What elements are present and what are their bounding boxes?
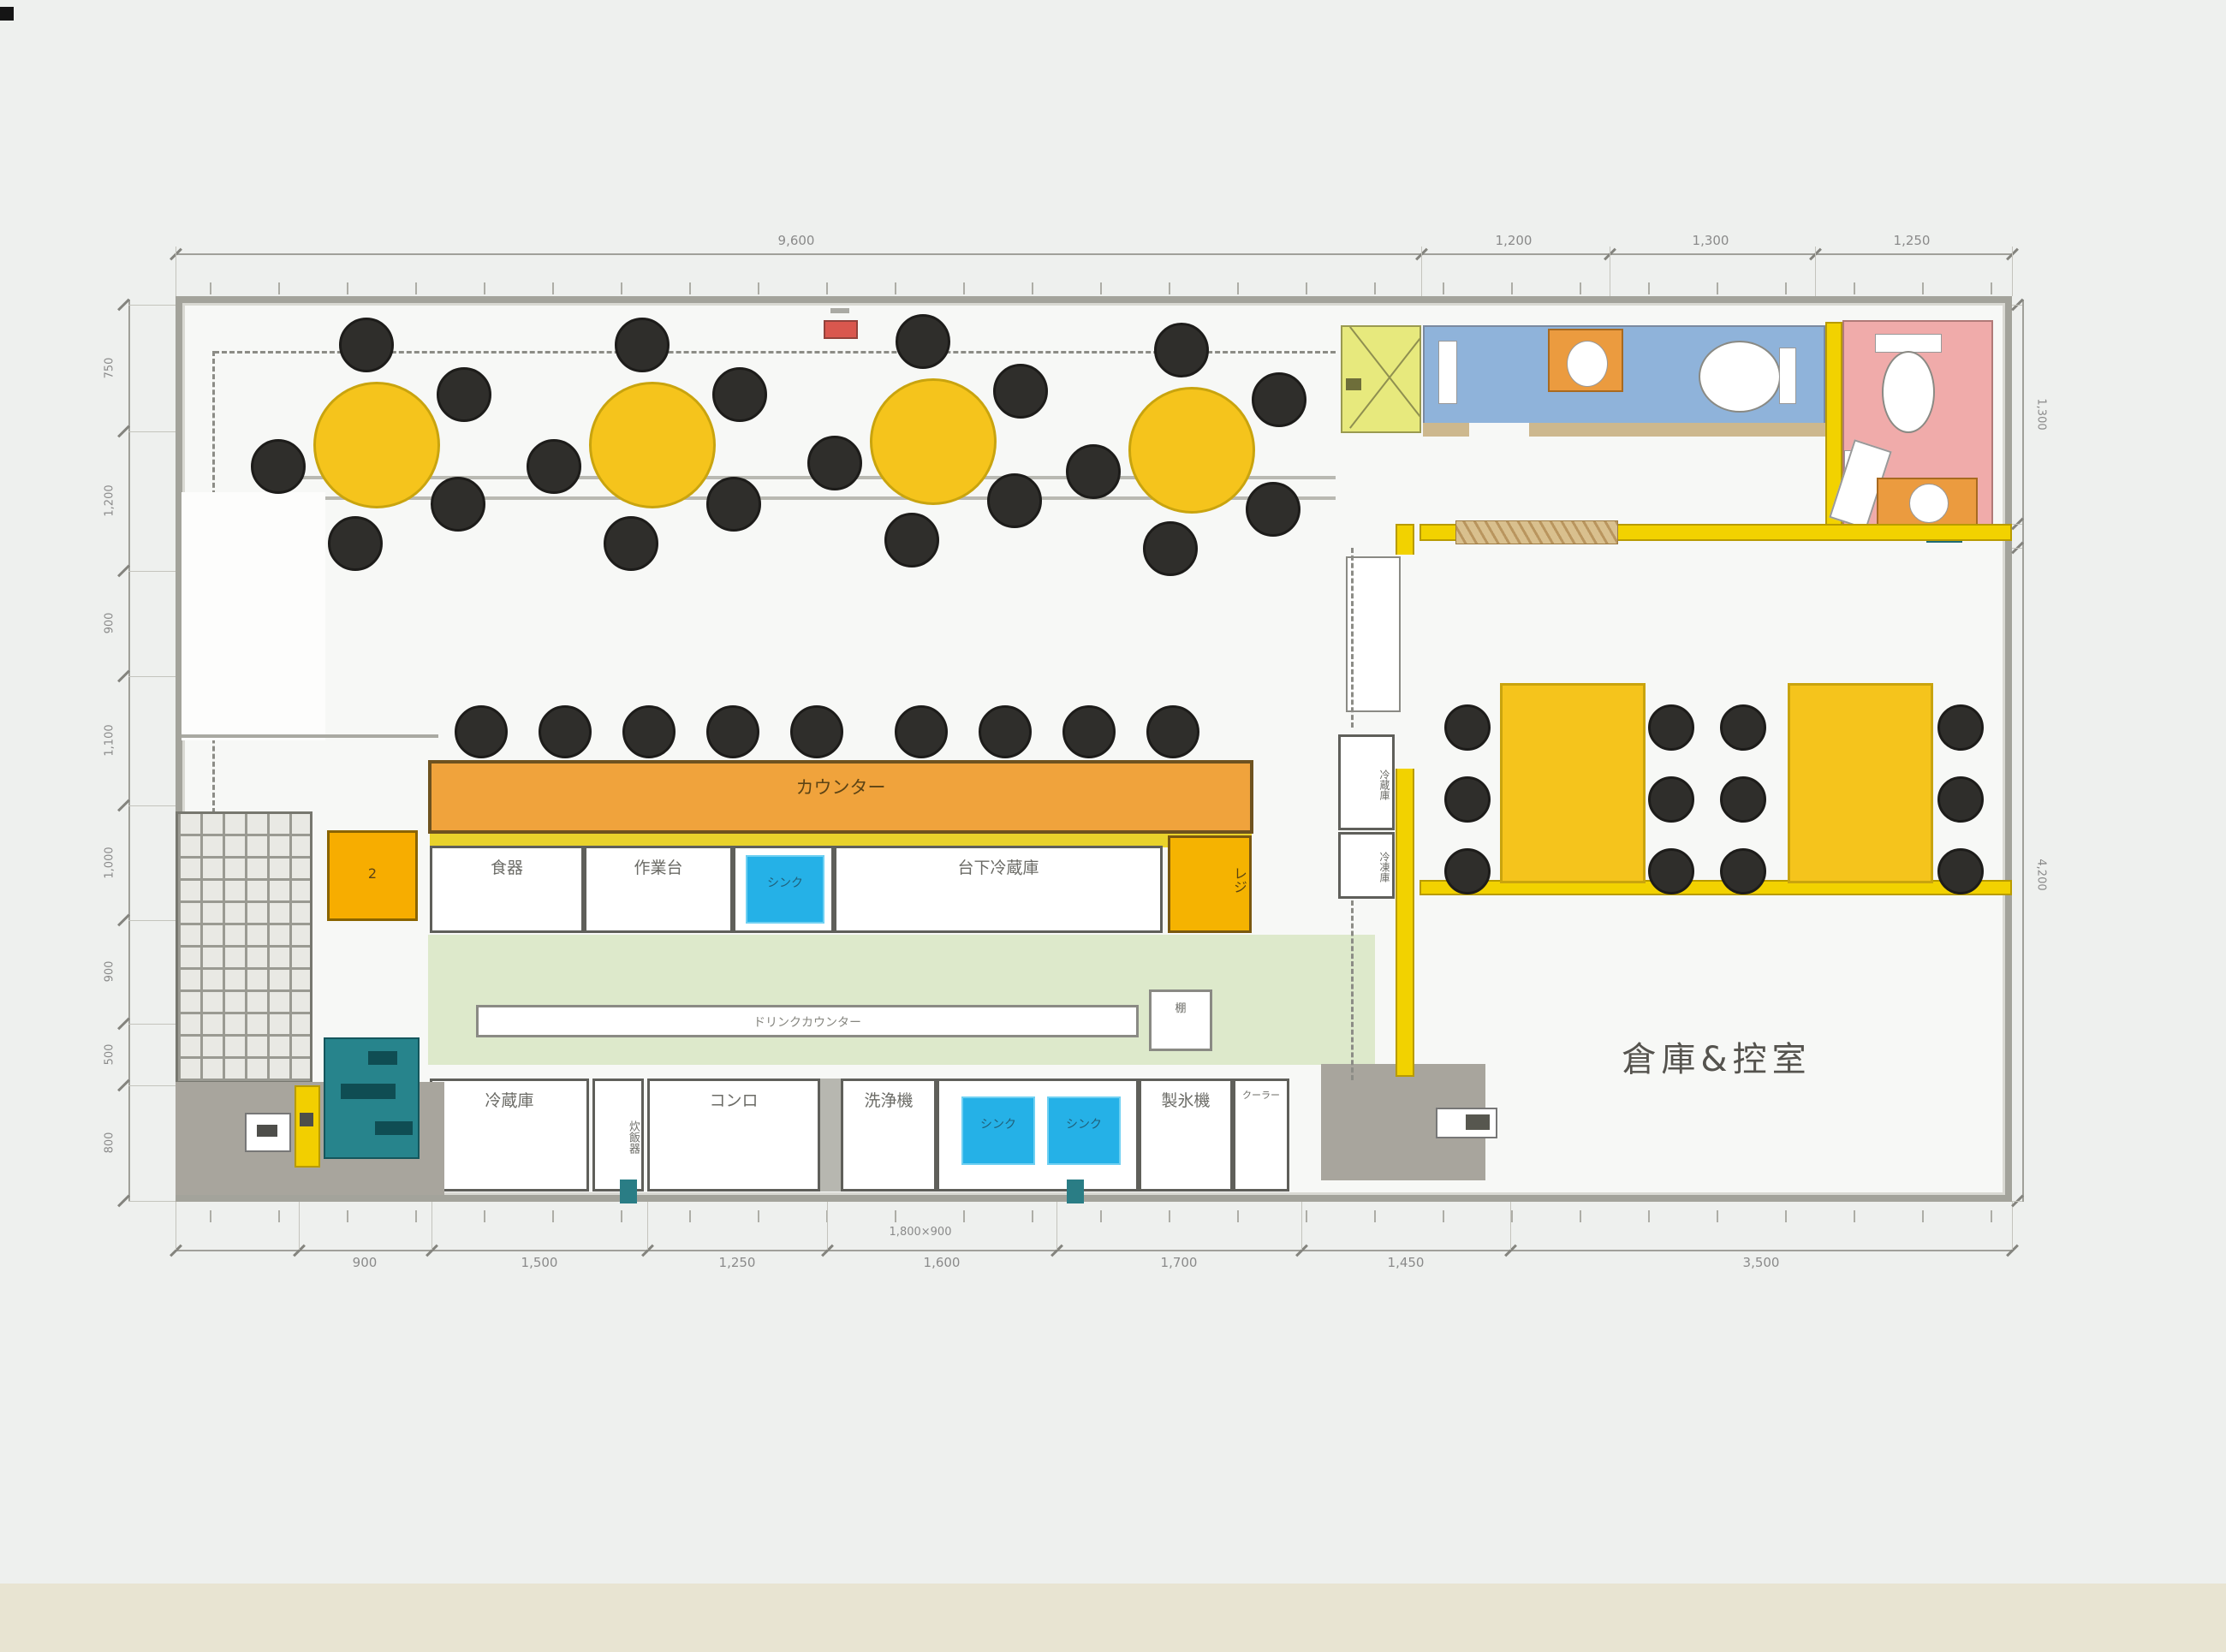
floor-drain-left: [620, 1180, 637, 1203]
mens-toilet: [1423, 325, 1825, 433]
minor-tick: [347, 1210, 348, 1222]
scanned-floor-plan: カウンター 2 食器 作業台 シンク 台下冷蔵庫 レジ ドリンクカウンター 棚 …: [0, 0, 2226, 1652]
equip-fridge-label: 冷蔵庫: [432, 1088, 586, 1111]
extension-line: [128, 431, 176, 432]
minor-tick: [552, 282, 554, 294]
dashed-service-line-lower: [1351, 900, 1354, 1080]
closet-mark: [1346, 378, 1361, 390]
minor-tick: [1100, 282, 1102, 294]
teal-cabinet-text-blob-1: [368, 1051, 397, 1065]
equip-double-sink: シンク シンク: [937, 1079, 1139, 1191]
extension-line: [432, 1202, 432, 1250]
chair: [1648, 704, 1694, 751]
mens-toilet-tank: [1779, 348, 1796, 404]
storage-north-sliding-door: [1455, 520, 1618, 544]
minor-tick: [1100, 1210, 1102, 1222]
minor-tick: [758, 1210, 759, 1222]
extension-line: [1610, 247, 1610, 296]
extension-line: [1301, 1202, 1302, 1250]
mens-sink-basin: [1567, 341, 1608, 387]
entrance-left-door-knob: [300, 1113, 313, 1126]
chair: [251, 439, 306, 494]
teal-cabinet: [324, 1037, 420, 1159]
chair: [1937, 848, 1984, 894]
dim-label: 1,700: [1161, 1255, 1198, 1270]
extension-line: [2012, 548, 2022, 549]
storage-west-door-leaf: [1346, 556, 1401, 712]
minor-tick: [552, 1210, 554, 1222]
stool: [1062, 705, 1116, 758]
dim-label: 1,450: [1388, 1255, 1425, 1270]
round-table: [589, 382, 716, 508]
chair: [1937, 704, 1984, 751]
stool: [706, 705, 759, 758]
equip-stove-label: コンロ: [650, 1088, 818, 1111]
extension-line: [2012, 247, 2013, 296]
wall-box-freezer-label: 冷凍庫: [1341, 840, 1392, 894]
chair: [527, 439, 581, 494]
dim-label: 9,600: [778, 233, 815, 248]
dim-chain-top: [176, 253, 2012, 255]
extension-line: [1056, 1202, 1057, 1250]
sink-basin-label: シンク: [747, 874, 823, 891]
vestibule-signbox-mark: [1466, 1114, 1490, 1130]
dim-label: 1,300: [2035, 398, 2048, 430]
minor-tick: [210, 1210, 211, 1222]
service-zone: [428, 935, 1375, 1065]
round-table: [1128, 387, 1255, 514]
wall-box-freezer: 冷凍庫: [1338, 832, 1395, 899]
dim-label: 1,200: [104, 484, 116, 516]
small-shelf-label: 棚: [1152, 999, 1210, 1015]
equip-tableware-label: 食器: [432, 855, 581, 878]
stool: [455, 705, 508, 758]
minor-tick: [1169, 282, 1170, 294]
chair: [615, 318, 670, 372]
drink-bar: ドリンクカウンター: [476, 1005, 1139, 1037]
dim-note: 1,800×900: [890, 1226, 952, 1239]
minor-tick: [1717, 1210, 1718, 1222]
extension-line: [128, 920, 176, 921]
equip-worktable: 作業台: [584, 846, 733, 933]
womens-toilet-tank: [1875, 334, 1942, 353]
minor-tick: [1785, 1210, 1787, 1222]
minor-tick: [895, 1210, 896, 1222]
equip-rice-cooker: 炊飯器: [592, 1079, 644, 1191]
entrance-left-signbox-mark: [257, 1125, 277, 1137]
equip-dishwasher: 洗浄機: [841, 1079, 937, 1191]
stool: [539, 705, 592, 758]
womens-sink: [1877, 478, 1978, 526]
extension-line: [2012, 305, 2022, 306]
minor-tick: [1991, 1210, 1992, 1222]
minor-tick: [484, 282, 485, 294]
extension-line: [128, 305, 176, 306]
extension-line: [1421, 247, 1422, 296]
wall-box-fridge-label: 冷蔵庫: [1341, 744, 1392, 826]
minor-tick: [689, 282, 691, 294]
hall-table: [1500, 683, 1646, 883]
dashed-service-line-upper: [1351, 548, 1354, 728]
utility-closet: [1341, 325, 1421, 433]
equip-undercounter-fridge: 台下冷蔵庫: [834, 846, 1163, 933]
equip-ice-maker: 製氷機: [1139, 1079, 1233, 1191]
minor-tick: [1306, 1210, 1307, 1222]
minor-tick: [963, 1210, 965, 1222]
minor-tick: [1511, 282, 1513, 294]
toilet-door-gap: [1469, 423, 1529, 437]
small-shelf: 棚: [1149, 989, 1212, 1051]
womens-sink-basin: [1909, 484, 1949, 523]
minor-tick: [1580, 1210, 1581, 1222]
teal-cabinet-text-blob-2: [341, 1084, 396, 1099]
minor-tick: [1374, 282, 1376, 294]
minor-tick: [689, 1210, 691, 1222]
minor-tick: [963, 282, 965, 294]
extension-line: [1815, 247, 1816, 296]
service-box: 2: [327, 830, 418, 921]
extension-line: [128, 805, 176, 806]
service-box-mark: 2: [330, 865, 415, 882]
minor-tick: [278, 1210, 280, 1222]
red-marker: [824, 320, 858, 339]
extension-line: [2012, 524, 2022, 525]
minor-tick: [621, 1210, 622, 1222]
sink-basin-right: シンク: [1047, 1096, 1121, 1165]
chair: [437, 367, 491, 422]
extension-line: [176, 1202, 176, 1250]
chair: [1720, 704, 1766, 751]
extension-line: [827, 1202, 828, 1250]
womens-toilet-bowl: [1882, 351, 1935, 433]
extension-line: [128, 1024, 176, 1025]
dim-label: 900: [353, 1255, 378, 1270]
mens-sink: [1548, 329, 1623, 392]
register-box: レジ: [1168, 835, 1252, 933]
minor-tick: [1648, 1210, 1650, 1222]
minor-tick: [1511, 1210, 1513, 1222]
equip-ice-maker-label: 製氷機: [1141, 1088, 1230, 1111]
drink-bar-label: ドリンクカウンター: [479, 1013, 1136, 1031]
sink-basin-left: シンク: [961, 1096, 1035, 1165]
chair: [1252, 372, 1306, 427]
stool: [790, 705, 843, 758]
chair: [896, 314, 950, 369]
floor-edge-line: [182, 734, 438, 738]
chair: [1444, 848, 1491, 894]
dim-label: 1,600: [924, 1255, 961, 1270]
stool: [1146, 705, 1199, 758]
minor-tick: [1374, 1210, 1376, 1222]
dim-label: 750: [104, 358, 116, 379]
minor-tick: [347, 282, 348, 294]
minor-tick: [895, 282, 896, 294]
chair: [1720, 848, 1766, 894]
minor-tick: [1854, 282, 1855, 294]
equip-tableware: 食器: [430, 846, 584, 933]
dim-label: 800: [104, 1132, 116, 1154]
minor-tick: [415, 1210, 417, 1222]
dim-label: 1,100: [104, 724, 116, 756]
minor-tick: [1443, 282, 1444, 294]
kitchen-wall-stub: [820, 1079, 841, 1191]
dim-label: 1,500: [521, 1255, 558, 1270]
extension-line: [2012, 1202, 2013, 1250]
chair: [1066, 444, 1121, 499]
minor-tick: [278, 282, 280, 294]
dim-label: 900: [104, 961, 116, 983]
minor-tick: [1854, 1210, 1855, 1222]
extension-line: [128, 1201, 176, 1202]
scan-corner-mark: [0, 7, 14, 21]
dim-label: 4,200: [2035, 859, 2048, 890]
sink-basin-left-label: シンク: [963, 1115, 1033, 1132]
chair: [1648, 776, 1694, 823]
stool: [979, 705, 1032, 758]
dim-chain-right: [2022, 300, 2024, 1202]
chair: [712, 367, 767, 422]
minor-tick: [758, 282, 759, 294]
minor-tick: [1785, 282, 1787, 294]
teal-cabinet-text-blob-3: [375, 1121, 413, 1135]
extension-line: [176, 247, 176, 296]
dim-label: 1,300: [1693, 233, 1729, 248]
equip-undercounter-fridge-label: 台下冷蔵庫: [836, 855, 1160, 878]
chair: [1648, 848, 1694, 894]
scan-bottom-band: [0, 1584, 2226, 1652]
entrance-left-door: [295, 1085, 320, 1168]
hall-table: [1788, 683, 1933, 883]
sink-basin: シンク: [746, 855, 824, 924]
counter: カウンター: [428, 760, 1253, 834]
floor-drain-right: [1067, 1180, 1084, 1203]
round-table: [313, 382, 440, 508]
stool: [895, 705, 948, 758]
wall-box-fridge: 冷蔵庫: [1338, 734, 1395, 830]
dim-label: 1,000: [104, 847, 116, 878]
equip-stove: コンロ: [647, 1079, 820, 1191]
chair: [1444, 776, 1491, 823]
stool: [622, 705, 676, 758]
chair: [993, 364, 1048, 419]
dim-label: 1,250: [1894, 233, 1931, 248]
minor-tick: [1991, 282, 1992, 294]
extension-line: [128, 1085, 176, 1086]
extension-line: [1510, 1202, 1511, 1250]
minor-tick: [415, 282, 417, 294]
dim-label: 900: [104, 613, 116, 634]
floor-patch: [182, 492, 325, 740]
chair: [1720, 776, 1766, 823]
minor-tick: [826, 282, 828, 294]
dim-label: 3,500: [1743, 1255, 1780, 1270]
sink-basin-right-label: シンク: [1049, 1115, 1119, 1132]
extension-line: [2012, 1201, 2022, 1202]
round-table: [870, 378, 997, 505]
chair: [1154, 323, 1209, 377]
mens-toilet-bowl: [1699, 341, 1781, 413]
dim-chain-bottom: [176, 1250, 2012, 1251]
chair: [1444, 704, 1491, 751]
minor-tick: [210, 282, 211, 294]
equip-cooler-label: クーラー: [1235, 1088, 1287, 1102]
extension-line: [128, 676, 176, 677]
minor-tick: [1580, 282, 1581, 294]
dim-label: 1,200: [1496, 233, 1533, 248]
stairs: [176, 811, 312, 1084]
chair: [1937, 776, 1984, 823]
equip-cooler: クーラー: [1233, 1079, 1289, 1191]
storage-room-label: 倉庫&控室: [1533, 1031, 1901, 1081]
extension-line: [647, 1202, 648, 1250]
minor-tick: [1169, 1210, 1170, 1222]
minor-tick: [1032, 1210, 1033, 1222]
toilet-shelf: [1438, 341, 1457, 404]
dim-label: 1,250: [719, 1255, 756, 1270]
minor-tick: [1922, 1210, 1924, 1222]
minor-tick: [1922, 282, 1924, 294]
minor-tick: [1717, 282, 1718, 294]
red-marker-tick: [830, 308, 849, 313]
extension-line: [299, 1202, 300, 1250]
chair: [807, 436, 862, 490]
minor-tick: [1237, 282, 1239, 294]
equip-sink-top: シンク: [733, 846, 834, 933]
minor-tick: [484, 1210, 485, 1222]
equip-worktable-label: 作業台: [586, 855, 730, 878]
chair: [339, 318, 394, 372]
equip-rice-cooker-label: 炊飯器: [595, 1090, 641, 1184]
minor-tick: [621, 282, 622, 294]
counter-label: カウンター: [432, 774, 1250, 799]
minor-tick: [1443, 1210, 1444, 1222]
extension-line: [128, 571, 176, 572]
dim-label: 500: [104, 1044, 116, 1066]
womens-toilet: [1842, 320, 1993, 526]
register-label: レジ: [1170, 850, 1249, 910]
minor-tick: [1032, 282, 1033, 294]
minor-tick: [1306, 282, 1307, 294]
minor-tick: [1237, 1210, 1239, 1222]
minor-tick: [1648, 282, 1650, 294]
equip-dishwasher-label: 洗浄機: [843, 1088, 934, 1111]
equip-fridge: 冷蔵庫: [430, 1079, 589, 1191]
dim-chain-left: [128, 300, 130, 1202]
